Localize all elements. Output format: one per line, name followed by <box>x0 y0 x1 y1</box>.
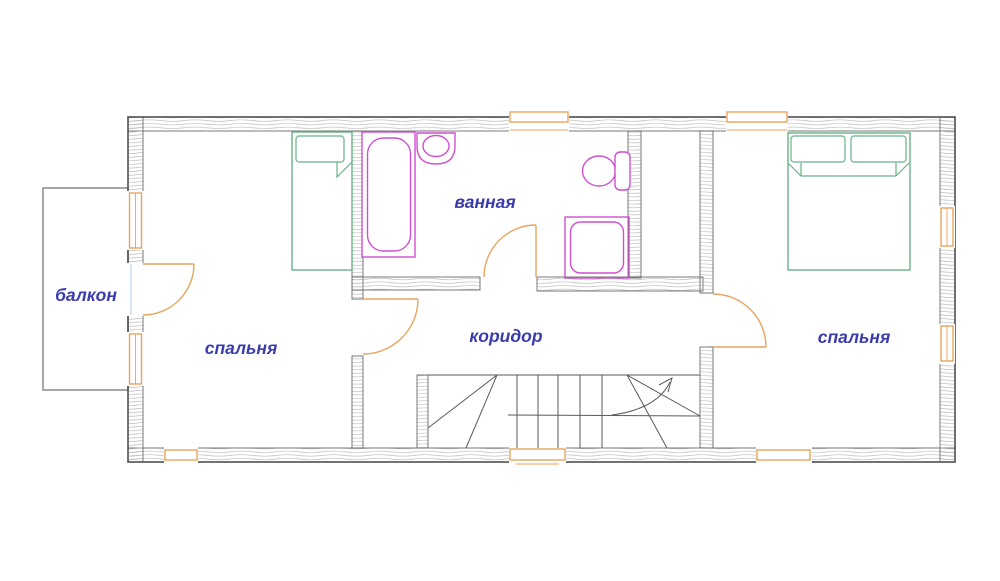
window-icon <box>164 447 198 463</box>
window-icon <box>726 112 788 132</box>
window-icon <box>938 324 955 364</box>
sink-icon <box>417 133 455 164</box>
balcony-door-icon <box>127 263 194 316</box>
wall-bathroom-bottom-left <box>352 277 480 290</box>
room-label-bathroom: ванная <box>454 192 515 212</box>
bathtub-icon <box>362 132 415 257</box>
window-icon <box>938 206 955 248</box>
toilet-icon <box>583 152 631 190</box>
double-bed-icon <box>788 133 910 270</box>
bedroom-left-door-icon <box>363 299 418 354</box>
bathroom-door-icon <box>484 225 536 277</box>
wall-bathroom-bottom-right <box>537 277 703 291</box>
room-label-corridor: коридор <box>469 326 542 346</box>
room-label-bedroom-right: спальня <box>818 327 891 347</box>
wall-bedroomright-upper <box>700 131 713 293</box>
wall-right <box>940 117 955 462</box>
wall-bathroom-right <box>628 131 641 278</box>
staircase-icon <box>428 375 700 448</box>
bedroom-right-door-icon <box>713 294 766 347</box>
window-icon <box>509 112 569 132</box>
window-icon <box>509 447 566 464</box>
room-label-bedroom-left: спальня <box>205 338 278 358</box>
window-icon <box>756 447 812 463</box>
window-icon <box>127 191 144 250</box>
shower-cabin-icon <box>565 217 629 278</box>
wall-bedroomleft-lower <box>352 356 363 448</box>
single-bed-icon <box>292 132 352 270</box>
floor-plan: балкон спальня ванная коридор спальня <box>0 0 1000 581</box>
wall-stairs-right <box>700 347 713 448</box>
room-label-balcony: балкон <box>55 285 117 305</box>
window-icon <box>127 332 144 386</box>
stair-direction-arrow <box>612 382 670 415</box>
wall-stairs-left <box>417 375 428 448</box>
